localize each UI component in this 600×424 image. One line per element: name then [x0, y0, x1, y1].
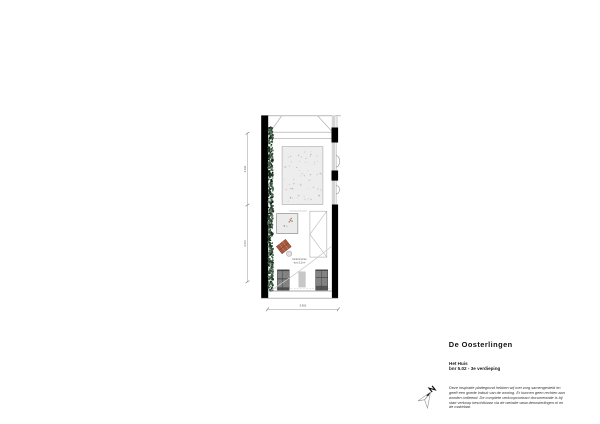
svg-text:5.960: 5.960	[300, 303, 307, 307]
svg-text:buitenruimte: buitenruimte	[292, 257, 307, 261]
svg-text:3.190: 3.190	[243, 165, 247, 172]
svg-text:3.470: 3.470	[243, 240, 247, 247]
svg-text:bvo 5,2m²: bvo 5,2m²	[294, 261, 306, 265]
